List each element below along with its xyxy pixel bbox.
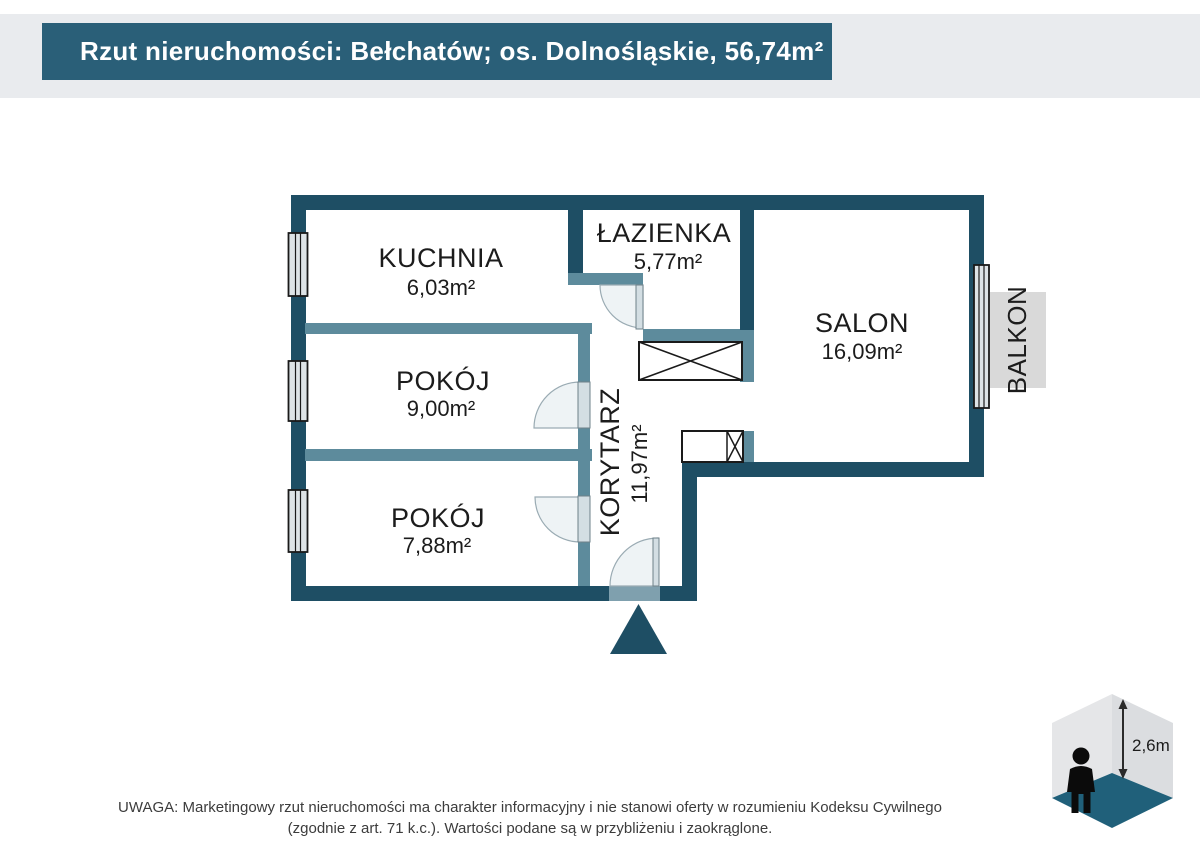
wall-bathroom-south <box>643 329 740 341</box>
window-room-1 <box>289 361 308 421</box>
door-entrance <box>610 538 659 586</box>
cabinet-hatched <box>682 431 743 462</box>
entrance-arrow <box>610 604 667 654</box>
room-label-kuchnia: KUCHNIA <box>378 243 503 273</box>
wall-room-room-partition <box>305 449 592 461</box>
door-room-2 <box>535 496 590 542</box>
wall-bathroom-left <box>568 210 583 273</box>
floorplan-page: Rzut nieruchomości: Bełchatów; os. Dolno… <box>0 0 1200 860</box>
ceiling-height-cube: 2,6m <box>1052 694 1173 828</box>
wall-korytarz-left-b <box>578 428 590 497</box>
window-balcony-door <box>974 265 989 408</box>
room-area-lazienka: 5,77m² <box>634 249 702 274</box>
wardrobe-hatched <box>639 342 742 380</box>
wall-bathroom-sw <box>568 273 643 285</box>
wall-korytarz-right <box>682 462 697 601</box>
wall-kitchen-room-partition <box>305 323 592 334</box>
room-area-pokoj-2: 7,88m² <box>403 533 471 558</box>
wall-salon-bottom <box>682 462 984 477</box>
room-area-salon: 16,09m² <box>822 339 903 364</box>
disclaimer: UWAGA: Marketingowy rzut nieruchomości m… <box>80 797 980 839</box>
door-room-1 <box>534 382 590 428</box>
room-label-salon: SALON <box>815 308 909 338</box>
entrance-threshold <box>609 586 660 601</box>
room-area-pokoj-1: 9,00m² <box>407 396 475 421</box>
wall-korytarz-left-a <box>578 323 590 383</box>
disclaimer-line-1: UWAGA: Marketingowy rzut nieruchomości m… <box>80 797 980 818</box>
room-labels: KUCHNIA 6,03m² ŁAZIENKA 5,77m² SALON 16,… <box>378 218 1031 558</box>
room-label-pokoj-2: POKÓJ <box>391 502 485 533</box>
window-kitchen <box>289 233 308 296</box>
wall-bathroom-right <box>740 210 754 330</box>
room-area-korytarz: 11,97m² <box>627 424 652 503</box>
balcony-label: BALKON <box>1002 286 1032 395</box>
door-bathroom <box>600 285 643 329</box>
room-area-kuchnia: 6,03m² <box>407 275 475 300</box>
fixtures <box>639 342 743 462</box>
room-label-pokoj-1: POKÓJ <box>396 365 490 396</box>
floorplan-drawing: KUCHNIA 6,03m² ŁAZIENKA 5,77m² SALON 16,… <box>0 0 1200 860</box>
ceiling-height-value: 2,6m <box>1132 736 1170 755</box>
window-room-2 <box>289 490 308 552</box>
wall-top <box>291 195 984 210</box>
room-label-korytarz: KORYTARZ <box>595 388 625 537</box>
disclaimer-line-2: (zgodnie z art. 71 k.c.). Wartości podan… <box>80 818 980 839</box>
wall-korytarz-left-c <box>578 542 590 586</box>
room-label-lazienka: ŁAZIENKA <box>597 218 732 248</box>
